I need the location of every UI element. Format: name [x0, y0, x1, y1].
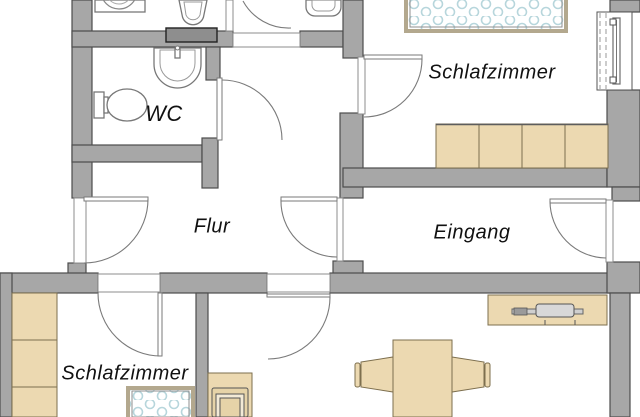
door-swing-arc: [364, 59, 422, 117]
bed-bottom: [128, 388, 193, 417]
door-wc: [217, 78, 282, 140]
room-label-entrance: Eingang: [434, 222, 511, 245]
stove: [208, 373, 252, 417]
door-bedroom-top: [364, 55, 422, 117]
wall-segment: [607, 262, 640, 293]
door-frame: [74, 198, 86, 263]
wall-segment: [612, 187, 640, 201]
room-label-wc: WC: [145, 101, 183, 127]
toilet-cistern: [166, 28, 217, 42]
door-frame: [98, 274, 160, 292]
door-leaf: [550, 199, 606, 203]
wall-segment: [196, 293, 208, 417]
door-leaf: [364, 55, 422, 59]
window-niche: [597, 12, 632, 90]
door-leaf: [267, 294, 330, 297]
door-swing-arc: [281, 199, 337, 257]
door-swing-arc: [84, 199, 148, 263]
toilet-bowl: [306, 0, 341, 16]
floor-plan: Schlafzimmer WC Flur Eingang Schlafzimme…: [0, 0, 640, 417]
wall-segment: [607, 90, 640, 187]
dining-set: [355, 340, 490, 417]
door-swing-arc: [243, 1, 291, 28]
room-label-bedroom-top: Schlafzimmer: [428, 62, 555, 85]
wall-segment: [68, 263, 86, 274]
door-leaf: [217, 78, 222, 140]
washing-machine: [95, 0, 145, 12]
wardrobe-top: [436, 124, 608, 168]
door-hall-left: [84, 197, 148, 263]
toilet-upper-right: [306, 0, 341, 16]
wall-segment: [160, 273, 267, 293]
wall-segment: [610, 293, 630, 417]
wall-segment: [330, 273, 613, 293]
wall-segment: [0, 273, 12, 417]
door-top-room: [243, 1, 291, 28]
wall-segment: [72, 145, 202, 162]
radiator-valve: [610, 77, 616, 83]
door-frame: [337, 198, 343, 261]
oven-window: [220, 398, 240, 417]
radiator-valve: [610, 19, 616, 25]
chair-seat: [452, 357, 484, 392]
wall-segment: [202, 138, 218, 188]
door-frame: [358, 57, 365, 114]
room-label-bedroom-bottom: Schlafzimmer: [61, 363, 188, 386]
door-leaf: [158, 293, 162, 356]
wall-segment: [72, 0, 92, 198]
wall-segment: [343, 0, 363, 58]
door-apartment-entrance: [550, 199, 606, 258]
door-bedroom-bottom: [98, 293, 162, 356]
tv-body: [536, 304, 574, 317]
wall-segment: [300, 31, 343, 47]
wall-segment: [343, 168, 607, 187]
washer-body: [95, 0, 145, 12]
wall-segment: [0, 273, 98, 293]
door-frame: [267, 274, 330, 292]
faucet-knob: [176, 46, 180, 50]
door-frame: [606, 200, 613, 262]
chair-seat: [361, 357, 393, 392]
bed: [128, 388, 193, 417]
wardrobe-bottom: [12, 293, 57, 417]
toilet-top: [166, 0, 217, 42]
door-swing-arc: [98, 293, 161, 356]
door-swing-arc: [550, 201, 606, 258]
room-label-hall: Flur: [194, 216, 230, 239]
door-hall-to-entrance: [281, 197, 337, 257]
chair-backrest: [355, 363, 360, 387]
toilet-wc: [94, 89, 147, 121]
wardrobe: [12, 293, 57, 417]
bed: [406, 0, 566, 31]
chair-backrest: [485, 363, 490, 387]
passage-opening: [233, 33, 300, 47]
bed-top: [406, 0, 566, 31]
door-leaf: [84, 197, 148, 201]
partition-line: [226, 0, 233, 31]
toilet-bowl: [179, 0, 207, 25]
toilet-tank: [94, 92, 104, 118]
wall-segment: [610, 0, 640, 12]
tv-board: [488, 295, 607, 325]
door-swing-arc: [268, 297, 330, 359]
table: [393, 340, 452, 417]
tv-detail: [514, 308, 527, 315]
door-living-room: [267, 294, 330, 359]
sink: [154, 46, 201, 88]
door-swing-arc: [222, 80, 282, 140]
wall-segment: [206, 47, 220, 80]
toilet-bowl: [107, 89, 147, 121]
door-leaf: [281, 197, 337, 201]
